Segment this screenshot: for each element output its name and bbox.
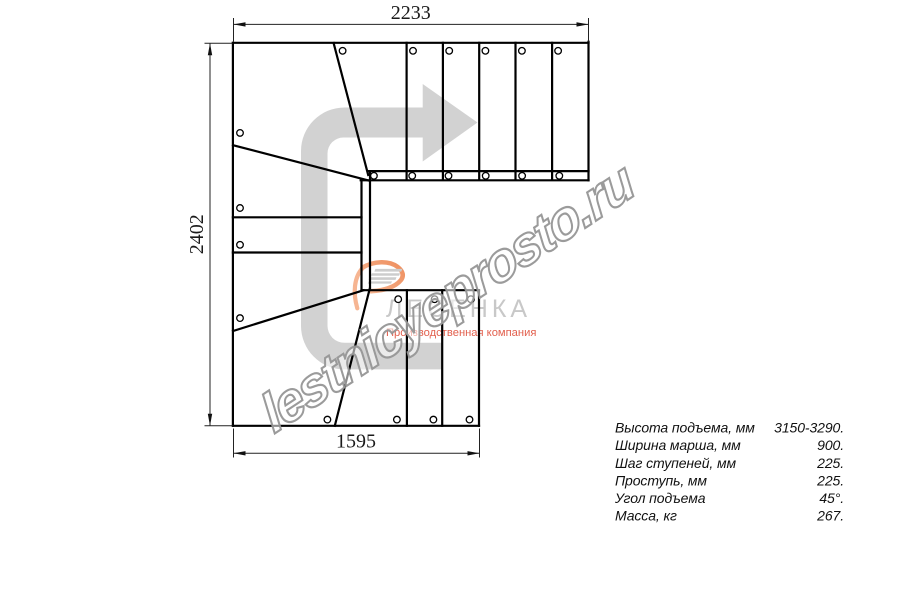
svg-text:267.: 267. <box>816 508 844 524</box>
svg-text:225.: 225. <box>816 473 844 489</box>
svg-text:Высота подъема, мм: Высота подъема, мм <box>615 420 755 436</box>
svg-text:Шаг ступеней, мм: Шаг ступеней, мм <box>615 455 736 471</box>
svg-text:Проступь, мм: Проступь, мм <box>615 473 707 489</box>
svg-text:3150-3290.: 3150-3290. <box>774 420 844 436</box>
svg-text:Ширина марша, мм: Ширина марша, мм <box>615 437 741 453</box>
svg-text:900.: 900. <box>817 437 844 453</box>
svg-text:225.: 225. <box>816 455 844 471</box>
svg-text:Масса, кг: Масса, кг <box>615 508 677 524</box>
svg-text:45°.: 45°. <box>819 490 844 506</box>
svg-text:2233: 2233 <box>391 2 431 24</box>
svg-text:2402: 2402 <box>186 214 208 254</box>
svg-text:Угол подъема: Угол подъема <box>614 490 706 506</box>
svg-text:1595: 1595 <box>336 430 376 452</box>
